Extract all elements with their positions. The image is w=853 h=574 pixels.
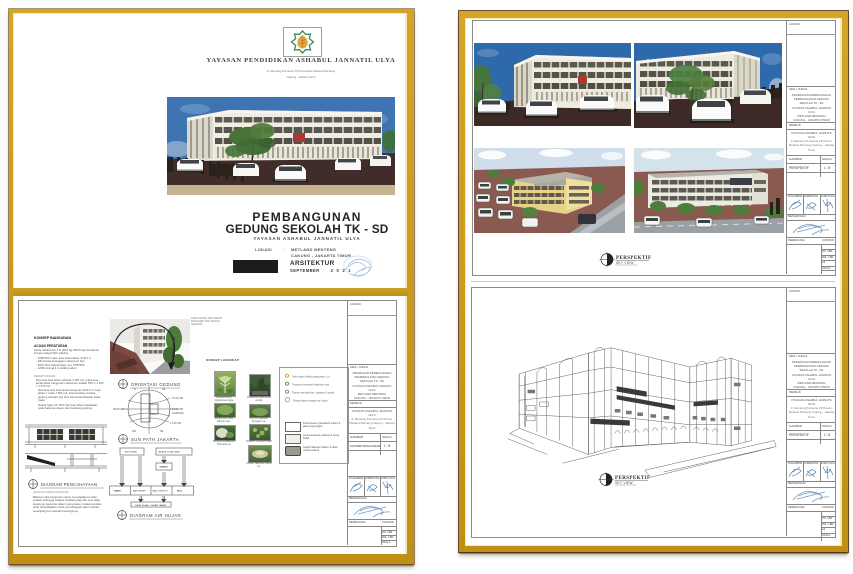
svg-text:N: N xyxy=(134,388,136,391)
svg-text:Ruang hijau resapan air hujan: Ruang hijau resapan air hujan xyxy=(293,399,328,403)
svg-text:BAK KONTROL: BAK KONTROL xyxy=(153,490,169,493)
svg-text:Tanaman peneduh halaman tepi: Tanaman peneduh halaman tepi xyxy=(292,383,329,387)
svg-text:12.00 PM: 12.00 PM xyxy=(172,407,183,411)
svg-text:Taman bermain lap. upacara & p: Taman bermain lap. upacara & parkir xyxy=(292,391,335,395)
svg-text:TANKI: TANKI xyxy=(114,490,121,493)
svg-text:SHADING: SHADING xyxy=(172,411,184,415)
svg-text:SUMUR: SUMUR xyxy=(160,467,168,469)
svg-text:SKY VIEW: SKY VIEW xyxy=(616,261,634,265)
svg-text:07.00 AM: 07.00 AM xyxy=(172,396,183,400)
svg-text:SUN PATH JAKARTA: SUN PATH JAKARTA xyxy=(131,437,179,442)
svg-text:DIAGRAM PENCAHAYAAN: DIAGRAM PENCAHAYAAN xyxy=(41,482,97,487)
svg-text:DIAGRAM AIR HUJAN: DIAGRAM AIR HUJAN xyxy=(130,513,181,518)
svg-text:TALANG & SALURAN: TALANG & SALURAN xyxy=(158,451,180,454)
svg-text:NE: NE xyxy=(162,388,166,391)
svg-text:DAUR ULANG / SIRAM TAMAN: DAUR ULANG / SIRAM TAMAN xyxy=(135,504,167,507)
svg-text:AIR HUJAN: AIR HUJAN xyxy=(125,451,137,454)
svg-text:Jalur hijau keliling bangunan: Jalur hijau keliling bangunan 1 m xyxy=(292,375,330,379)
svg-text:SKY VIEW: SKY VIEW xyxy=(615,481,633,485)
svg-text:RIOL: RIOL xyxy=(177,491,183,493)
svg-text:17.00 PM: 17.00 PM xyxy=(170,421,181,425)
svg-text:06.00 AM: 06.00 AM xyxy=(113,407,124,411)
svg-text:BAK RESAP: BAK RESAP xyxy=(133,490,146,493)
